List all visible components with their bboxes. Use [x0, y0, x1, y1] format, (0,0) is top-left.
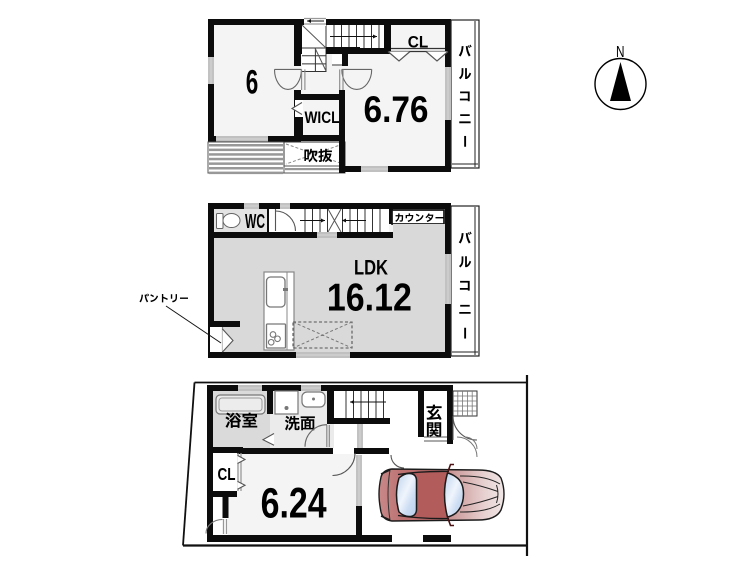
svg-text:WICL: WICL	[305, 109, 340, 127]
svg-text:WC: WC	[245, 210, 265, 233]
svg-text:6: 6	[246, 64, 259, 102]
svg-text:16.12: 16.12	[327, 277, 412, 320]
svg-text:CL: CL	[218, 464, 236, 484]
svg-text:6.24: 6.24	[261, 480, 327, 528]
svg-text:6.76: 6.76	[364, 89, 429, 130]
svg-text:N: N	[616, 44, 625, 61]
